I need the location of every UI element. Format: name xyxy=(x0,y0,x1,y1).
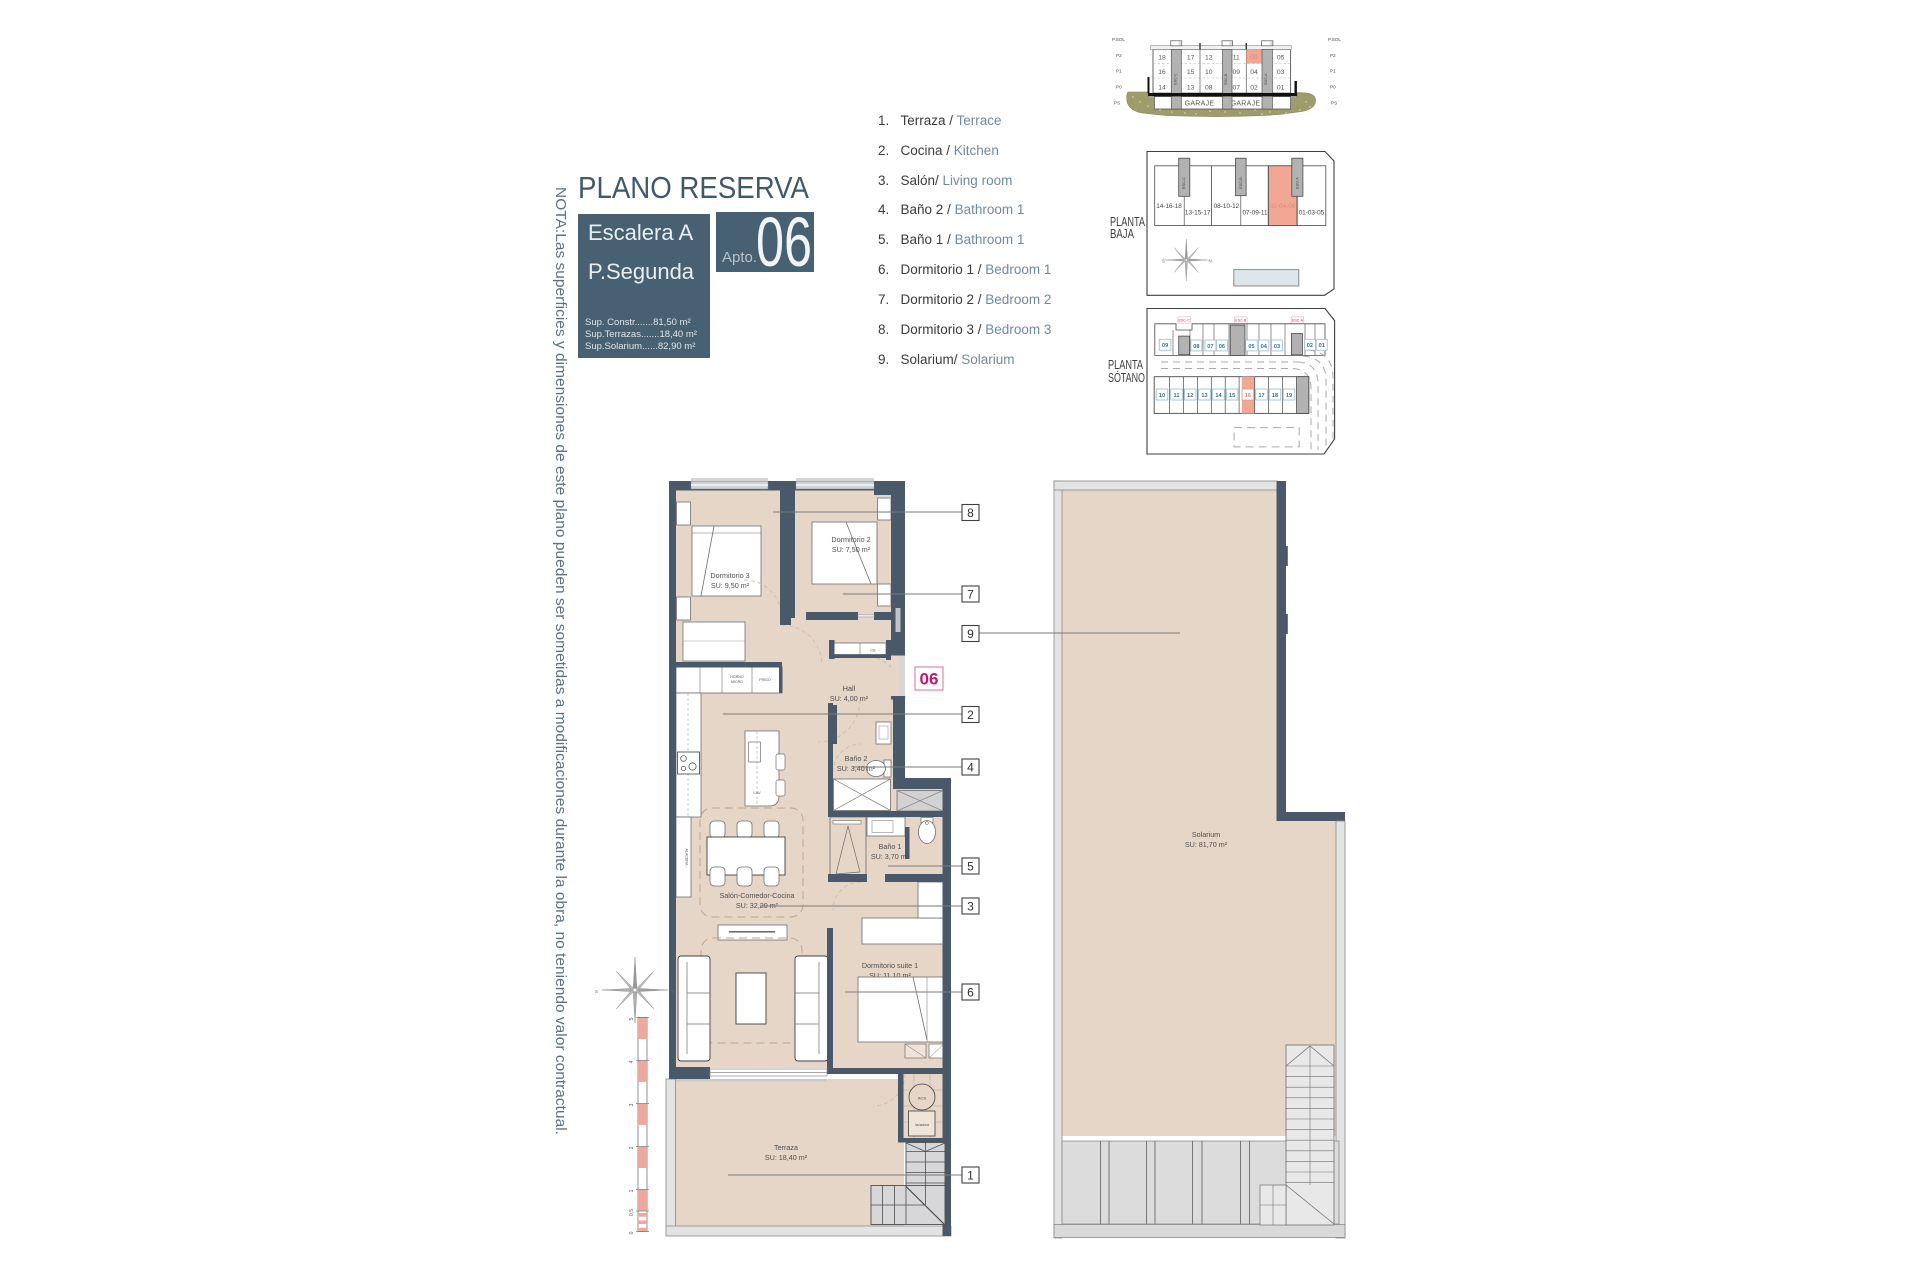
svg-text:19: 19 xyxy=(1286,393,1292,399)
svg-text:02: 02 xyxy=(1307,343,1313,349)
svg-text:P0: P0 xyxy=(1330,85,1336,90)
svg-text:11: 11 xyxy=(1174,393,1180,399)
svg-text:17: 17 xyxy=(1258,393,1264,399)
svg-text:02: 02 xyxy=(1250,85,1258,92)
svg-text:17: 17 xyxy=(1187,55,1195,62)
svg-text:04: 04 xyxy=(1261,344,1268,350)
svg-text:6: 6 xyxy=(967,986,974,1000)
svg-text:08: 08 xyxy=(1205,85,1213,92)
svg-text:ACS: ACS xyxy=(918,1096,927,1101)
svg-text:2: 2 xyxy=(629,1146,635,1149)
svg-text:Baño 2: Baño 2 xyxy=(845,754,868,763)
svg-text:GARAJE: GARAJE xyxy=(1231,101,1261,108)
svg-text:05: 05 xyxy=(1248,344,1254,350)
svg-text:ESC-A: ESC-A xyxy=(1292,319,1304,323)
svg-text:2: 2 xyxy=(967,708,974,722)
svg-text:03: 03 xyxy=(1274,344,1280,350)
svg-text:06: 06 xyxy=(1250,54,1258,61)
svg-text:FRIGO: FRIGO xyxy=(759,678,771,682)
svg-text:BAJA: BAJA xyxy=(1110,227,1135,241)
svg-text:3: 3 xyxy=(967,900,974,914)
svg-text:Sup.Terrazas.......18,40 m²: Sup.Terrazas.......18,40 m² xyxy=(585,329,697,340)
svg-text:05: 05 xyxy=(1277,55,1285,62)
svg-text:ESC-C: ESC-C xyxy=(1182,177,1186,189)
svg-text:9. Solarium/ Solarium: 9. Solarium/ Solarium xyxy=(878,352,1015,367)
svg-text:SÓTANO: SÓTANO xyxy=(1108,370,1145,385)
svg-text:12: 12 xyxy=(1205,55,1213,62)
svg-text:P.Segunda: P.Segunda xyxy=(588,259,695,284)
svg-text:1: 1 xyxy=(629,1189,635,1192)
svg-text:01-03-05: 01-03-05 xyxy=(1299,210,1325,217)
svg-text:Dormitorio 2: Dormitorio 2 xyxy=(831,535,870,544)
svg-text:11: 11 xyxy=(1233,55,1240,62)
svg-text:ESC-B: ESC-B xyxy=(1239,177,1243,189)
svg-text:P.SOL: P.SOL xyxy=(1112,37,1125,42)
svg-text:4: 4 xyxy=(967,761,974,775)
svg-text:SU: 32,20 m²: SU: 32,20 m² xyxy=(736,901,779,910)
svg-text:S: S xyxy=(1162,259,1165,264)
svg-text:SU: 3,70 m²: SU: 3,70 m² xyxy=(871,852,910,861)
svg-text:ESC-B: ESC-B xyxy=(1224,73,1228,85)
svg-text:3: 3 xyxy=(629,1103,635,1106)
svg-text:Salón-Comedor-Cocina: Salón-Comedor-Cocina xyxy=(719,891,794,900)
svg-text:0: 0 xyxy=(629,1231,635,1234)
svg-text:06: 06 xyxy=(1219,344,1225,350)
svg-text:Escalera A: Escalera A xyxy=(588,220,693,245)
svg-text:9: 9 xyxy=(967,627,974,641)
svg-text:4. Baño 2 / Bathroom 1: 4. Baño 2 / Bathroom 1 xyxy=(878,202,1024,217)
svg-text:5: 5 xyxy=(629,1017,635,1020)
svg-text:Dormitorio suite 1: Dormitorio suite 1 xyxy=(862,961,918,970)
svg-text:08-10-12: 08-10-12 xyxy=(1214,203,1240,210)
svg-text:10: 10 xyxy=(1159,393,1165,399)
svg-text:01: 01 xyxy=(1319,343,1325,349)
svg-text:Sup.Solarium......82,90 m²: Sup.Solarium......82,90 m² xyxy=(585,341,695,352)
svg-text:SU: 9,50 m²: SU: 9,50 m² xyxy=(711,581,750,590)
svg-text:MICRO: MICRO xyxy=(731,680,743,684)
svg-text:N: N xyxy=(671,989,674,994)
svg-text:18: 18 xyxy=(1158,55,1166,62)
svg-text:P.SOL: P.SOL xyxy=(1328,37,1341,42)
svg-text:N: N xyxy=(1209,259,1212,264)
svg-text:ESC-C: ESC-C xyxy=(1179,319,1191,323)
svg-text:SU: 7,50 m²: SU: 7,50 m² xyxy=(832,545,871,554)
svg-text:16: 16 xyxy=(1245,393,1251,399)
svg-text:SU: 4,00 m²: SU: 4,00 m² xyxy=(830,694,869,703)
svg-text:PLANTA: PLANTA xyxy=(1108,358,1143,372)
svg-text:5. Baño 1 / Bathroom 1: 5. Baño 1 / Bathroom 1 xyxy=(878,232,1024,247)
svg-text:01: 01 xyxy=(1277,85,1285,92)
svg-text:12: 12 xyxy=(1187,393,1193,399)
svg-text:7. Dormitorio 2 / Bedroom 2: 7. Dormitorio 2 / Bedroom 2 xyxy=(878,292,1051,307)
svg-text:Baño 1: Baño 1 xyxy=(879,842,902,851)
svg-text:09: 09 xyxy=(1162,343,1168,349)
svg-text:02-04-06: 02-04-06 xyxy=(1270,203,1296,210)
svg-text:7: 7 xyxy=(967,588,974,602)
svg-text:SU: 81,70 m²: SU: 81,70 m² xyxy=(1185,840,1228,849)
svg-text:16: 16 xyxy=(1158,69,1166,76)
svg-text:18: 18 xyxy=(1272,393,1278,399)
svg-text:8. Dormitorio 3 / Bedroom 3: 8. Dormitorio 3 / Bedroom 3 xyxy=(878,322,1051,337)
svg-text:GARAJE: GARAJE xyxy=(1185,101,1215,108)
svg-text:3. Salón/ Living room: 3. Salón/ Living room xyxy=(878,173,1012,188)
svg-text:CE: CE xyxy=(870,648,876,653)
svg-text:15: 15 xyxy=(1187,69,1195,76)
svg-text:5: 5 xyxy=(967,860,974,874)
svg-text:ESC-B: ESC-B xyxy=(1235,319,1247,323)
svg-text:07: 07 xyxy=(1233,85,1241,92)
svg-text:Solarium: Solarium xyxy=(1192,830,1220,839)
svg-text:Dormitorio 3: Dormitorio 3 xyxy=(710,571,749,580)
svg-text:lavadora: lavadora xyxy=(915,1123,929,1127)
svg-text:2. Cocina / Kitchen: 2. Cocina / Kitchen xyxy=(878,143,999,158)
svg-text:ESC-A: ESC-A xyxy=(1264,73,1268,85)
svg-text:13: 13 xyxy=(1187,85,1195,92)
svg-text:14: 14 xyxy=(1215,393,1222,399)
svg-text:SU: 18,40 m²: SU: 18,40 m² xyxy=(765,1153,808,1162)
svg-text:10: 10 xyxy=(1205,69,1213,76)
svg-text:14: 14 xyxy=(1158,85,1166,92)
svg-text:14-16-18: 14-16-18 xyxy=(1156,203,1182,210)
svg-text:1. Terraza / Terrace: 1. Terraza / Terrace xyxy=(878,113,1002,128)
svg-text:S: S xyxy=(595,989,598,994)
svg-text:SU: 3,40 m²: SU: 3,40 m² xyxy=(837,764,876,773)
svg-text:13: 13 xyxy=(1201,393,1207,399)
svg-text:4: 4 xyxy=(629,1060,635,1063)
svg-text:09: 09 xyxy=(1233,69,1241,76)
svg-text:PS: PS xyxy=(1331,101,1337,106)
svg-text:07: 07 xyxy=(1207,344,1213,350)
svg-text:HORNO: HORNO xyxy=(730,675,744,679)
svg-text:P2: P2 xyxy=(1116,53,1122,58)
svg-text:P1: P1 xyxy=(1116,69,1122,74)
svg-text:8: 8 xyxy=(967,506,974,520)
svg-text:15: 15 xyxy=(1229,393,1235,399)
svg-text:NOTA:Las superficies y dimensi: NOTA:Las superficies y dimensiones de es… xyxy=(552,187,568,1135)
svg-text:PLANO RESERVA: PLANO RESERVA xyxy=(578,170,809,205)
svg-text:Hall: Hall xyxy=(843,684,856,693)
svg-text:ESC-C: ESC-C xyxy=(1173,73,1177,85)
svg-text:06: 06 xyxy=(756,203,812,281)
svg-text:1: 1 xyxy=(967,1169,974,1183)
svg-text:03: 03 xyxy=(1277,69,1285,76)
svg-text:P2: P2 xyxy=(1330,53,1336,58)
svg-text:PS: PS xyxy=(1114,101,1120,106)
svg-text:ALACENA: ALACENA xyxy=(685,849,689,866)
svg-text:P0: P0 xyxy=(1116,85,1122,90)
svg-text:P1: P1 xyxy=(1330,69,1336,74)
svg-text:Apto.: Apto. xyxy=(722,249,757,266)
svg-text:0,5: 0,5 xyxy=(629,1209,635,1216)
svg-text:06: 06 xyxy=(920,670,939,689)
svg-text:07-09-11: 07-09-11 xyxy=(1242,210,1268,217)
svg-text:08: 08 xyxy=(1193,344,1199,350)
svg-text:04: 04 xyxy=(1250,69,1258,76)
svg-text:Sup. Constr.......81,50 m²: Sup. Constr.......81,50 m² xyxy=(585,317,691,328)
svg-text:ESC-A: ESC-A xyxy=(1295,177,1299,189)
svg-text:Terraza: Terraza xyxy=(774,1143,798,1152)
svg-text:13-15-17: 13-15-17 xyxy=(1185,210,1211,217)
svg-text:6. Dormitorio 1 / Bedroom 1: 6. Dormitorio 1 / Bedroom 1 xyxy=(878,262,1051,277)
